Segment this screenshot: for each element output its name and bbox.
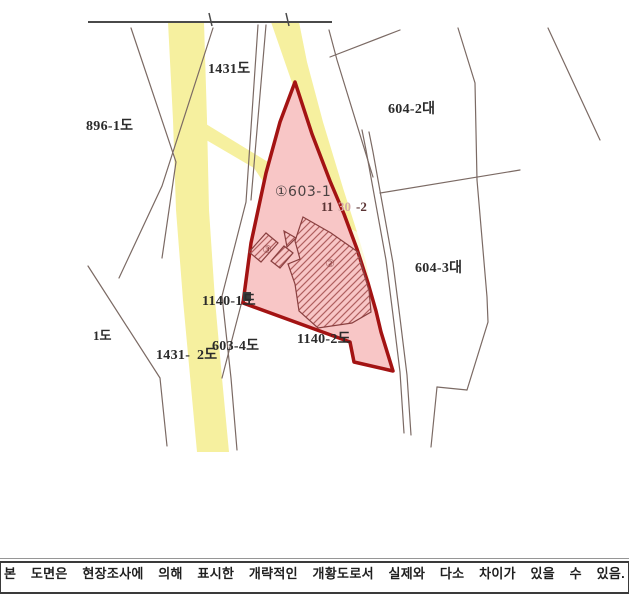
label-1130-2-part2: 30 xyxy=(338,199,351,214)
boundary-line xyxy=(458,28,477,180)
boundary-line xyxy=(467,180,488,390)
boundary-line xyxy=(380,170,520,193)
boundary-line xyxy=(431,387,437,447)
building-mark-2: ② xyxy=(325,257,335,270)
label-subject-603-1: ①603-1 xyxy=(275,184,331,200)
label-1130-2-part1: 11 xyxy=(321,199,333,214)
label-1140-1do: 1140-1도 xyxy=(202,293,256,309)
building-hatch-large xyxy=(288,217,371,328)
cadastral-map: 1431도 604-2대 896-1도 ①603-1 11 30 -2 ③ ② … xyxy=(0,0,629,555)
road-main-vertical xyxy=(168,22,229,452)
boundary-line xyxy=(437,387,467,390)
building-mark-3: ③ xyxy=(262,243,272,256)
footer-divider xyxy=(0,558,629,559)
label-1431-2do-part1: 1431- xyxy=(156,348,190,363)
label-1130-2-part3: -2 xyxy=(356,199,367,214)
label-1do: 1도 xyxy=(93,328,112,343)
label-1431-2do-part2: 2도 xyxy=(197,347,217,363)
boundary-line xyxy=(330,30,400,57)
disclaimer-note: 본 도면은 현장조사에 의해 표시한 개략적인 개황도로서 실제와 다소 차이가… xyxy=(0,561,629,594)
label-1431do: 1431도 xyxy=(208,61,250,77)
label-1140-2do: 1140-2도 xyxy=(297,331,351,347)
boundary-line xyxy=(369,132,411,435)
label-604-3dae: 604-3대 xyxy=(415,260,462,276)
label-604-2dae: 604-2대 xyxy=(388,101,435,117)
boundary-line xyxy=(131,28,176,258)
label-603-4do: 603-4도 xyxy=(212,338,259,354)
tick-mark xyxy=(209,13,212,26)
boundary-line xyxy=(548,28,600,140)
label-896-1do: 896-1도 xyxy=(86,118,133,134)
